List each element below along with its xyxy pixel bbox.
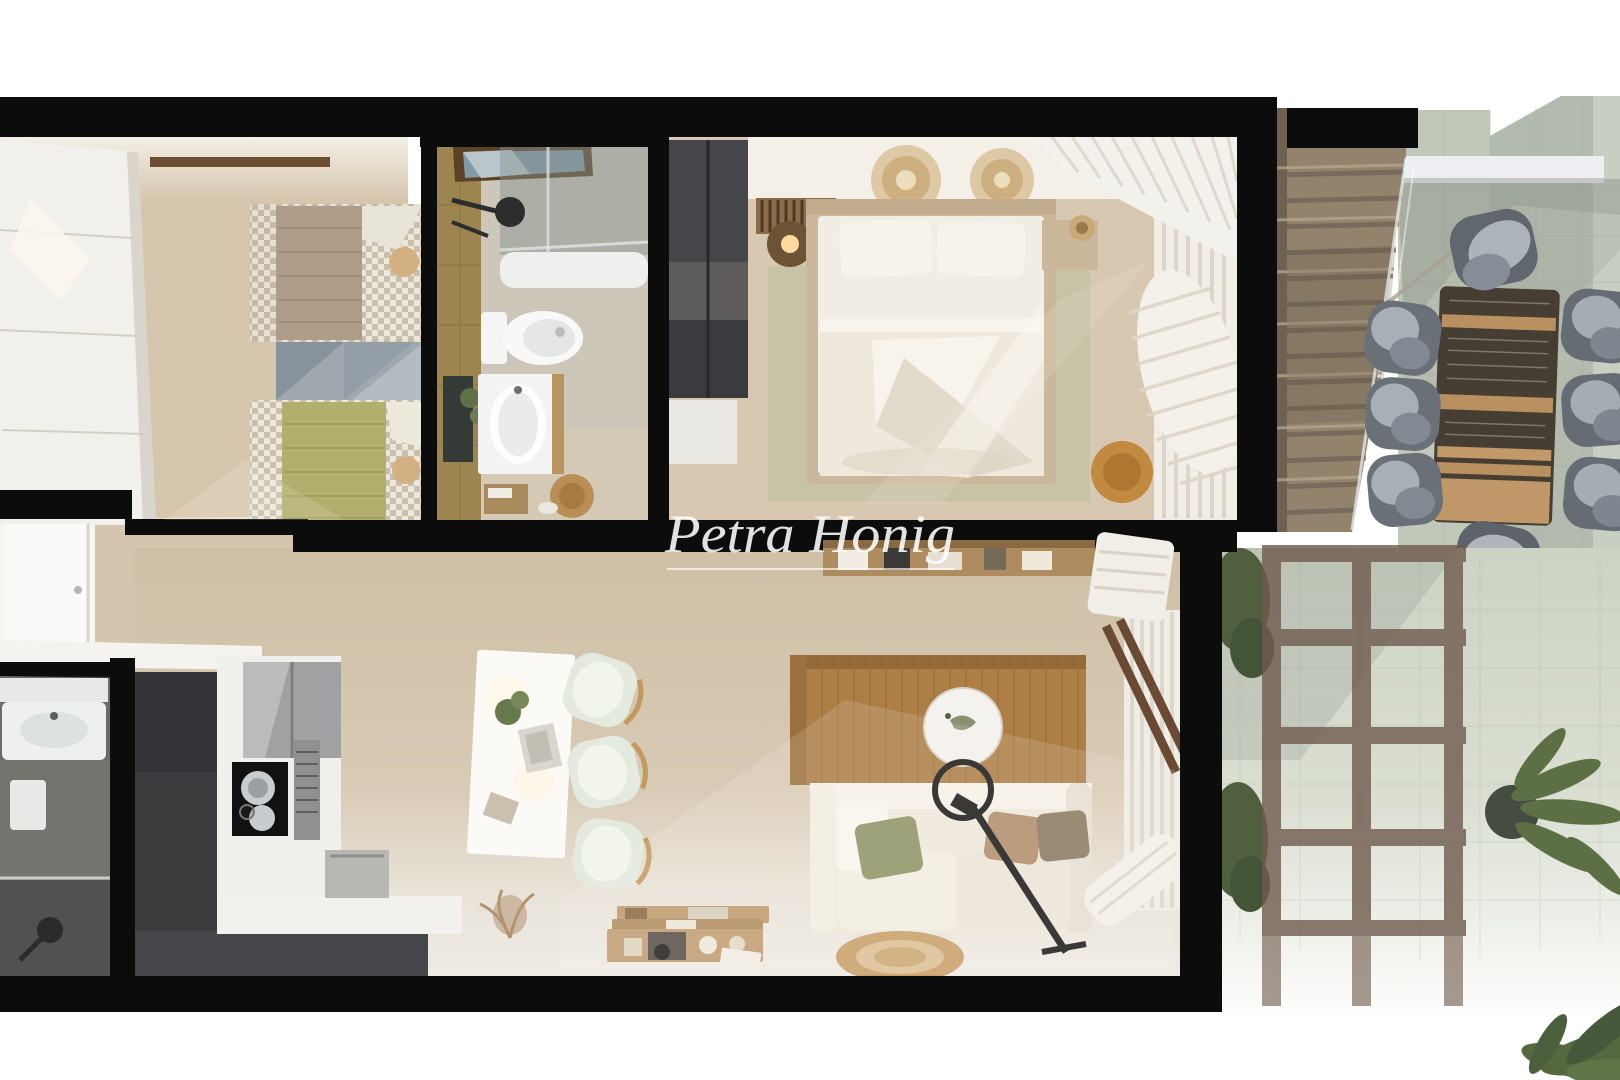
svg-text:Petra Honig: Petra Honig	[664, 504, 955, 564]
